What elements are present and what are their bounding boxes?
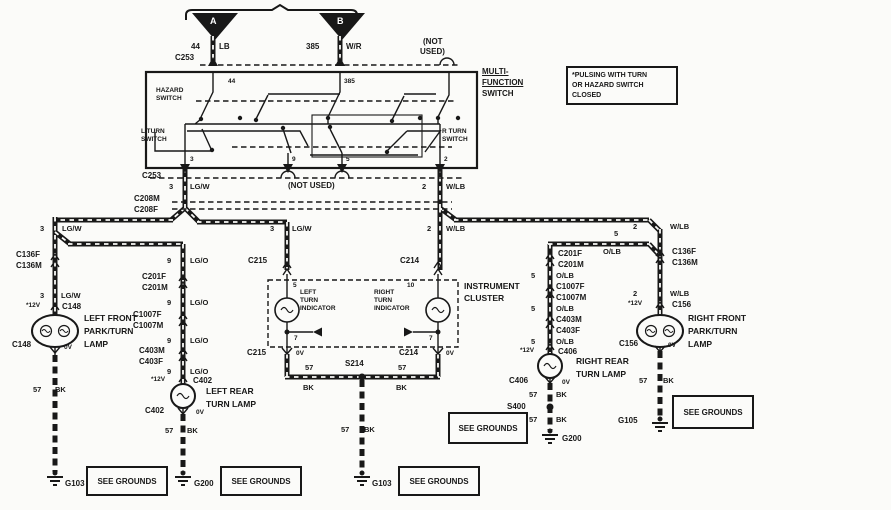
cl-feed3-wire: LG/W [292,225,312,233]
wiring-diagram: A B 44 LB 385 W/R (NOT USED) C253 *PULSI… [0,0,891,510]
rr-0v: 0V [562,380,570,387]
cluster-title1: INSTRUMENT [464,282,520,291]
r-turn-switch-label2: SWITCH [442,137,468,144]
left-indicator-label3: INDICATOR [300,306,336,313]
lr-0v: 0V [196,410,204,417]
not-used-top-line1: (NOT [423,38,443,46]
c208m-label: C208M [134,195,160,203]
connector-b-label: B [337,17,344,26]
ground-g200-left: G200 [194,480,214,488]
rr-wire4: O/LB [556,338,574,346]
lf-c136m: C136M [16,262,42,270]
right-indicator-arrow [404,328,413,337]
mfs-title-line3: SWITCH [482,90,514,98]
see-grounds-label-2: SEE GROUNDS [231,477,290,486]
rr-wire3: O/LB [556,305,574,313]
rf-c156: C156 [672,301,691,309]
rf-pin1: 2 [633,223,637,231]
right-front-lamp-symbol [637,315,683,347]
lf-pin1: 3 [40,225,44,233]
lf-12v: *12V [26,303,40,310]
lr-gnd-circuit: 57 [165,427,173,435]
rr-c201f: C201F [558,250,582,258]
mfs-pin44: 44 [228,79,235,86]
right-front-lamp-name1: RIGHT FRONT [688,314,746,323]
lr-wire3: LG/O [190,337,208,345]
c253-top-label: C253 [175,54,194,62]
rr-wire1: O/LB [603,248,621,256]
c253b-not-used: (NOT USED) [288,182,335,190]
s214-circuit-left: 57 [305,364,313,372]
c215-bottom-label: C215 [247,349,266,357]
c253b-pin2: 2 [422,183,426,191]
rr-wire2: O/LB [556,272,574,280]
left-front-lamp-name2: PARK/TURN [84,327,133,336]
l-turn-switch-label1: L TURN [141,129,165,136]
c253b-wire3: LG/W [190,183,210,191]
rf-gnd-color: BK [663,377,674,385]
left-front-lamp-symbol [32,315,78,347]
s214-color-right: BK [396,384,407,392]
color-wr-label: W/R [346,43,362,51]
cluster-pin10: 10 [407,283,414,290]
lf-gnd-color: BK [55,386,66,394]
lr-wire1: LG/O [190,257,208,265]
lf-0v: 0V [64,345,72,352]
right-front-lamp-name2: PARK/TURN [688,327,737,336]
lr-c1007f: C1007F [133,311,161,319]
lf-wire2: LG/W [61,292,81,300]
lf-wire1: LG/W [62,225,82,233]
rf-12v: *12V [628,301,642,308]
rr-gnd-color1: BK [556,391,567,399]
rf-c136m: C136M [672,259,698,267]
rr-12v: *12V [520,348,534,355]
circuit-44-label: 44 [191,43,200,51]
r-turn-switch-label1: R TURN [442,129,467,136]
c214-bottom-label: C214 [399,349,418,357]
splice-s214 [359,374,366,381]
cl-gnd-circuit: 57 [341,426,349,434]
c253b-pin3: 3 [169,183,173,191]
left-front-lamp-name1: LEFT FRONT [84,314,137,323]
lr-pin2: 9 [167,299,171,307]
mfs-title-line1: MULTI- [482,68,509,76]
lr-c403m: C403M [139,347,165,355]
rr-gnd-color2: BK [556,416,567,424]
rr-pin2: 5 [531,272,535,280]
cluster-pin7-right: 7 [429,336,433,343]
rf-c156b: C156 [619,340,638,348]
pulsing-note-box: *PULSING WITH TURN OR HAZARD SWITCH CLOS… [566,66,678,105]
rr-c406: C406 [558,348,577,356]
lr-c201f: C201F [142,273,166,281]
lf-pin2: 3 [40,292,44,300]
see-grounds-box-5: SEE GROUNDS [672,395,754,429]
left-indicator-label1: LEFT [300,290,316,297]
mfs-pin9: 9 [292,157,296,164]
c214-0v: 0V [446,351,454,358]
right-front-lamp-name3: LAMP [688,340,712,349]
s214-color-left: BK [303,384,314,392]
cl-feed3-pin: 3 [270,225,274,233]
cl-gnd-color: BK [364,426,375,434]
mfs-pin385: 385 [344,79,355,86]
note-line3: CLOSED [572,91,672,101]
c215-top-label: C215 [248,257,267,265]
not-used-top-line2: USED) [420,48,445,56]
lr-c201m: C201M [142,284,168,292]
left-indicator-label2: TURN [300,298,318,305]
cl-feed2-pin: 2 [427,225,431,233]
rf-gnd-circuit: 57 [639,377,647,385]
see-grounds-box-1: SEE GROUNDS [86,466,168,496]
lf-c136f: C136F [16,251,40,259]
color-lb-label: LB [219,43,230,51]
s214-circuit-right: 57 [398,364,406,372]
right-indicator-label3: INDICATOR [374,306,410,313]
cluster-title2: CLUSTER [464,294,504,303]
cluster-pin7-left: 7 [294,336,298,343]
rf-wire1: W/LB [670,223,689,231]
rr-c1007m: C1007M [556,294,586,302]
lr-c402: C402 [193,377,212,385]
hazard-switch-label2: SWITCH [156,96,182,103]
l-turn-switch-label2: SWITCH [141,137,167,144]
splice-s400 [547,404,554,411]
rf-wire2: W/LB [670,290,689,298]
rr-pin4: 5 [531,338,535,346]
mfs-pin5: 5 [346,157,350,164]
see-grounds-box-4: SEE GROUNDS [448,412,528,444]
lf-c148b: C148 [12,341,31,349]
left-rear-lamp-name1: LEFT REAR [206,387,254,396]
wiring-diagram-canvas [0,0,891,510]
rr-c403m: C403M [556,316,582,324]
rf-0v: 0V [668,343,676,350]
lf-gnd-circuit: 57 [33,386,41,394]
lf-c148: C148 [62,303,81,311]
splice-s400-label: S400 [507,403,526,411]
right-indicator-label1: RIGHT [374,290,394,297]
right-indicator-label2: TURN [374,298,392,305]
left-front-lamp-name3: LAMP [84,340,108,349]
c253b-wire2: W/LB [446,183,465,191]
ground-g103-middle: G103 [372,480,392,488]
ground-g103-left: G103 [65,480,85,488]
see-grounds-label-5: SEE GROUNDS [683,408,742,417]
splice-s214-label: S214 [345,360,364,368]
connector-a-label: A [210,17,217,26]
rr-pin3: 5 [531,305,535,313]
switch-contact-dots [199,116,460,335]
cluster-pin5: 5 [293,283,297,290]
hazard-switch-label1: HAZARD [156,88,183,95]
rr-pin1: 5 [614,230,618,238]
c214-top-label: C214 [400,257,419,265]
c208f-label: C208F [134,206,158,214]
right-rear-lamp-name2: TURN LAMP [576,370,626,379]
lr-wire2: LG/O [190,299,208,307]
see-grounds-label-3: SEE GROUNDS [409,477,468,486]
ground-g200-right: G200 [562,435,582,443]
rr-gnd-circuit2: 57 [529,416,537,424]
lr-12v: *12V [151,377,165,384]
lr-pin4: 9 [167,368,171,376]
lr-pin1: 9 [167,257,171,265]
left-indicator-arrow [313,328,322,337]
note-line1: *PULSING WITH TURN [572,71,672,81]
cl-feed2-wire: W/LB [446,225,465,233]
c253-bottom-label: C253 [142,172,161,180]
c215-0v: 0V [296,351,304,358]
see-grounds-box-3: SEE GROUNDS [398,466,480,496]
lr-c1007m: C1007M [133,322,163,330]
right-rear-lamp-name1: RIGHT REAR [576,357,629,366]
lr-c402b: C402 [145,407,164,415]
lr-c403f: C403F [139,358,163,366]
note-line2: OR HAZARD SWITCH [572,81,672,91]
see-grounds-label-1: SEE GROUNDS [97,477,156,486]
rf-c136f: C136F [672,248,696,256]
rr-c403f: C403F [556,327,580,335]
circuit-385-label: 385 [306,43,319,51]
ground-g105: G105 [618,417,638,425]
rr-c1007f: C1007F [556,283,584,291]
lr-pin3: 9 [167,337,171,345]
rf-pin2: 2 [633,290,637,298]
see-grounds-box-2: SEE GROUNDS [220,466,302,496]
mfs-title-line2: FUNCTION [482,79,523,87]
mfs-pin3: 3 [190,157,194,164]
left-rear-lamp-name2: TURN LAMP [206,400,256,409]
rr-gnd-circuit1: 57 [529,391,537,399]
rr-c201m: C201M [558,261,584,269]
lr-gnd-color: BK [187,427,198,435]
lr-wire4: LG/O [190,368,208,376]
see-grounds-label-4: SEE GROUNDS [458,424,517,433]
rr-c406b: C406 [509,377,528,385]
mfs-pin2: 2 [444,157,448,164]
